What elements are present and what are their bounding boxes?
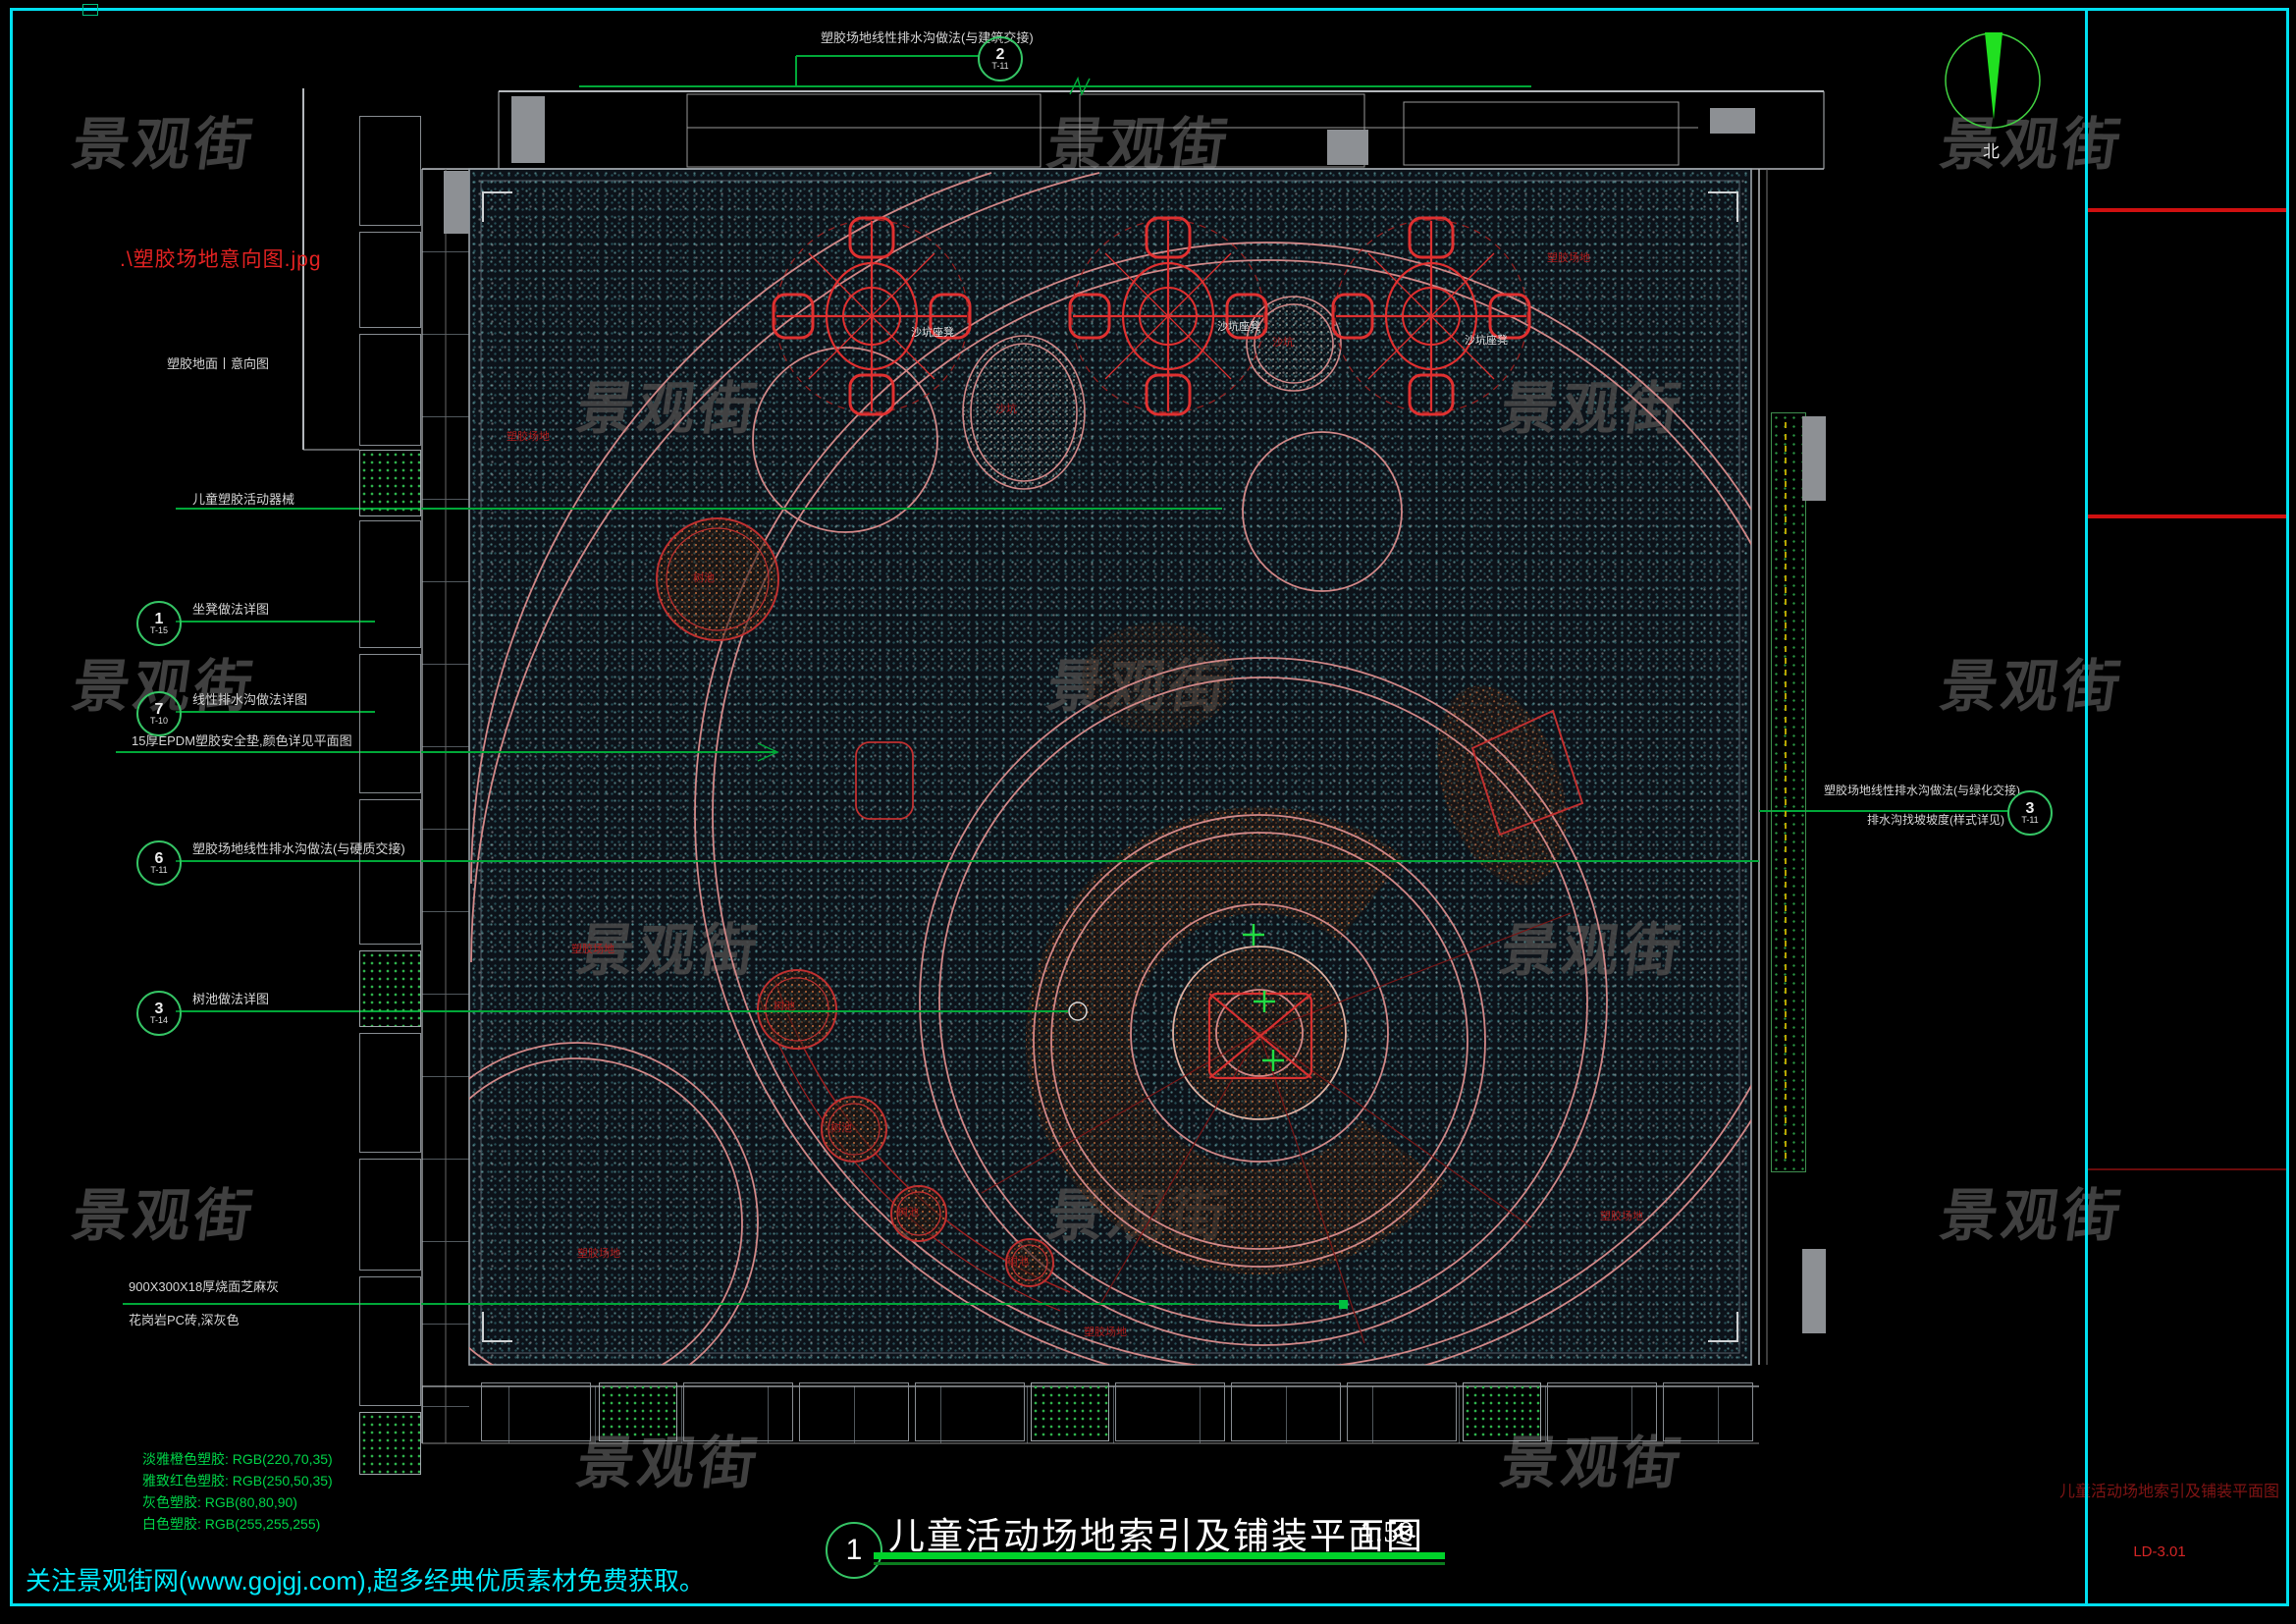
planter-box [1115, 1382, 1225, 1441]
north-label: 北 [1983, 137, 2000, 162]
title-underline-thin [874, 1562, 1445, 1565]
cad-drawing-page: 景观街 景观街 景观街 景观街 景观街 景观街 景观街 景观街 景观街 景观街 … [0, 0, 2296, 1624]
callout-drain-hard: 6 T-11 [136, 840, 182, 886]
planter-box [359, 1033, 421, 1153]
frame-top [10, 8, 2289, 11]
watermark: 景观街 [68, 98, 262, 181]
callout-code: T-15 [150, 626, 168, 635]
right-annotation-line2: 排水沟找坡坡度(样式详见) [1867, 811, 2004, 828]
wall-block [1710, 108, 1755, 134]
callout-number: 7 [155, 702, 164, 717]
plan-label: 沙坑座凳 [1217, 318, 1260, 334]
note-paving-line2: 花岗岩PC砖,深灰色 [129, 1310, 240, 1328]
planter-box [1231, 1382, 1341, 1441]
reference-image-caption: 塑胶地面丨意向图 [167, 353, 269, 372]
left-walkway-grid [422, 169, 469, 1443]
plan-label: 塑胶场地 [571, 941, 614, 956]
panel-divider-darkred [2088, 1168, 2287, 1170]
title-underline [874, 1552, 1445, 1559]
plan-label: 塑胶场地 [1547, 249, 1590, 265]
note-paving-line1: 900X300X18厚烧面芝麻灰 [129, 1276, 279, 1295]
wall-block [1802, 416, 1826, 501]
callout-code: T-11 [2021, 816, 2038, 825]
plan-label: 树池 [830, 1119, 852, 1135]
wall-block [1327, 130, 1368, 165]
watermark: 景观街 [1042, 640, 1237, 723]
note-equipment: 儿童塑胶活动器械 [192, 489, 294, 508]
planter-box [799, 1382, 909, 1441]
right-annotation-line1: 塑胶场地线性排水沟做法(与绿化交接) [1824, 782, 2020, 798]
plan-label: 沙坑座凳 [911, 324, 954, 340]
panel-divider-red [2088, 208, 2287, 212]
frame-right [2286, 8, 2289, 1606]
planter-box-hatched [599, 1382, 677, 1441]
planter-box-hatched [1031, 1382, 1109, 1441]
planter-box-hatched [359, 450, 421, 516]
frame-panel-divider [2085, 8, 2088, 1606]
planter-box-hatched [359, 1412, 421, 1475]
watermark: 景观街 [572, 362, 767, 445]
callout-number: 3 [2026, 801, 2035, 816]
planter-box [359, 1159, 421, 1271]
planter-box [359, 232, 421, 328]
panel-drawing-number: LD-3.01 [2101, 1543, 2218, 1560]
planter-box [359, 116, 421, 226]
plan-label: 塑胶场地 [507, 428, 550, 444]
callout-number: 1 [155, 612, 164, 626]
plan-label: 树池 [897, 1204, 919, 1219]
wall-block [444, 171, 469, 234]
callout-bench-label: 坐凳做法详图 [192, 599, 269, 618]
plan-label: 树池 [774, 998, 795, 1013]
planter-box-hatched [1463, 1382, 1541, 1441]
callout-tree-pit: 3 T-14 [136, 991, 182, 1036]
planter-box [359, 334, 421, 446]
plan-label: 塑胶场地 [1084, 1324, 1127, 1339]
watermark: 景观街 [1936, 1169, 2130, 1252]
callout-code: T-11 [991, 62, 1008, 71]
watermark: 景观街 [1496, 362, 1690, 445]
callout-linear-drain: 7 T-10 [136, 691, 182, 736]
planter-box [915, 1382, 1025, 1441]
callout-bench: 1 T-15 [136, 601, 182, 646]
drawing-scale: 1:50 [1360, 1514, 1414, 1549]
legend-orange-rubber: 淡雅橙色塑胶: RGB(220,70,35) [142, 1449, 333, 1469]
planter-box [1347, 1382, 1457, 1441]
watermark: 景观街 [68, 1169, 262, 1252]
plan-label: 树池 [1007, 1253, 1029, 1269]
callout-code: T-10 [150, 717, 168, 726]
plan-label: 塑胶场地 [577, 1245, 620, 1261]
planter-box [359, 654, 421, 793]
right-planting-strip [1771, 412, 1806, 1172]
corner-mark [82, 4, 98, 16]
planter-box [359, 520, 421, 648]
callout-number: 2 [996, 47, 1005, 62]
footer-watermark-text: 关注景观街网(www.gojgj.com),超多经典优质素材免费获取。 [26, 1561, 705, 1597]
plan-label: 沙坑 [995, 401, 1017, 416]
watermark: 景观街 [1042, 98, 1237, 181]
pipe-dashed-line [1785, 422, 1787, 1163]
planter-box [1547, 1382, 1657, 1441]
legend-white-rubber: 白色塑胶: RGB(255,255,255) [142, 1514, 320, 1534]
callout-tree-pit-label: 树池做法详图 [192, 989, 269, 1007]
drawing-index-number: 1 [846, 1534, 863, 1567]
callout-code: T-14 [150, 1016, 168, 1025]
watermark: 景观街 [1042, 1169, 1237, 1252]
frame-bottom [10, 1603, 2289, 1606]
planter-box [359, 799, 421, 945]
planter-box [359, 1276, 421, 1406]
legend-gray-rubber: 灰色塑胶: RGB(80,80,90) [142, 1492, 297, 1512]
drawing-index-circle: 1 [826, 1522, 882, 1579]
watermark: 景观街 [1496, 904, 1690, 987]
plan-label: 沙坑 [1272, 334, 1294, 350]
planter-box [1663, 1382, 1753, 1441]
callout-drain-green: 3 T-11 [2007, 790, 2053, 836]
planter-box-hatched [359, 950, 421, 1027]
watermark: 景观街 [1936, 98, 2130, 181]
drawing-title: 儿童活动场地索引及铺装平面图 [888, 1506, 1424, 1559]
callout-number: 6 [155, 851, 164, 866]
callout-number: 3 [155, 1001, 164, 1016]
watermark: 景观街 [1936, 640, 2130, 723]
callout-code: T-11 [150, 866, 167, 875]
callout-drain-hard-label: 塑胶场地线性排水沟做法(与硬质交接) [192, 839, 405, 857]
plan-label: 沙坑座凳 [1465, 332, 1508, 348]
wall-block [1802, 1249, 1826, 1333]
callout-linear-drain-label: 线性排水沟做法详图 [192, 689, 307, 708]
plan-label: 树池 [693, 569, 715, 585]
plan-label: 塑胶场地 [1600, 1208, 1643, 1223]
planter-box [481, 1382, 591, 1441]
wall-block [511, 96, 545, 163]
reference-image-filename: .\塑胶场地意向图.jpg [120, 244, 322, 273]
panel-divider-red [2088, 514, 2287, 518]
frame-left [10, 8, 13, 1606]
legend-red-rubber: 雅致红色塑胶: RGB(250,50,35) [142, 1471, 333, 1490]
planter-box [683, 1382, 793, 1441]
callout-drain-building: 2 T-11 [978, 36, 1023, 81]
